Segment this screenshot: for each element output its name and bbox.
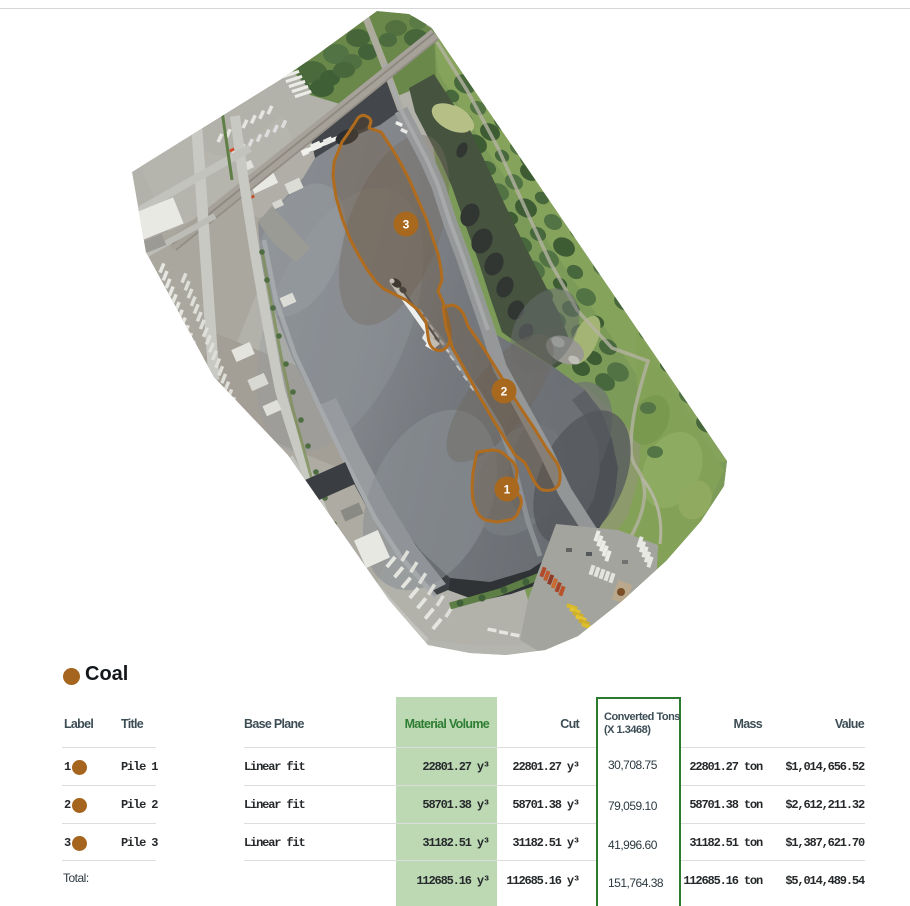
svg-text:3: 3: [403, 218, 410, 232]
svg-text:1: 1: [504, 483, 511, 497]
svg-text:2: 2: [501, 385, 508, 399]
